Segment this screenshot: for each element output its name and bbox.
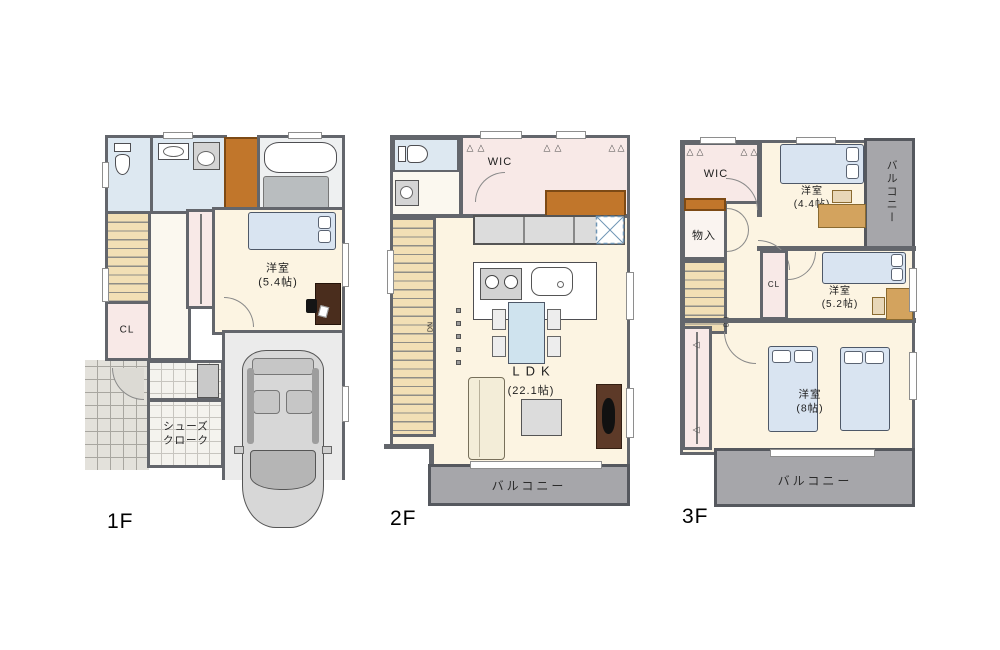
hanger-icon: △ bbox=[741, 147, 748, 158]
hanger-icon: △ bbox=[478, 143, 485, 154]
refrigerator-icon bbox=[595, 215, 625, 245]
desk-3f-44 bbox=[818, 204, 866, 228]
toilet-tank-icon bbox=[114, 143, 131, 152]
hanger-icon: △ bbox=[555, 143, 562, 154]
hanger-icon: △ bbox=[691, 427, 702, 434]
counter-divider bbox=[523, 217, 525, 243]
desk-chair-1f bbox=[306, 299, 317, 313]
closet-pole bbox=[200, 214, 202, 304]
window bbox=[626, 388, 634, 438]
window bbox=[163, 132, 193, 139]
closet-mid-label: CL bbox=[768, 280, 780, 290]
wic-label-2f: WIC bbox=[488, 155, 512, 169]
bed-pillow bbox=[794, 350, 813, 363]
wic-label-3f: WIC bbox=[704, 167, 728, 181]
stove-burner-icon bbox=[485, 275, 499, 289]
balcony-bottom-label: バルコニー bbox=[778, 474, 853, 490]
window bbox=[342, 386, 349, 422]
dining-chair bbox=[547, 309, 561, 330]
sink-drain-icon bbox=[557, 281, 564, 288]
car-windshield bbox=[250, 450, 316, 490]
window bbox=[626, 272, 634, 320]
bedroom52-label: 洋室 (5.2帖) bbox=[822, 285, 859, 311]
linen-cabinet bbox=[224, 137, 260, 211]
washing-machine-drum-icon bbox=[197, 151, 215, 166]
hanger-icon: △ bbox=[618, 143, 625, 154]
ldk-size-label: (22.1帖) bbox=[508, 384, 555, 398]
bed-pillow bbox=[772, 350, 791, 363]
desk-chair-3f bbox=[832, 190, 852, 203]
bed-pillow bbox=[318, 216, 331, 229]
floor-plan-sheet: シューズ クローク CL 洋室 (5.4帖) bbox=[0, 0, 1000, 650]
tv-icon bbox=[602, 398, 615, 434]
shoes-closet-label: シューズ クローク bbox=[163, 420, 209, 447]
hanger-icon: △ bbox=[697, 147, 704, 158]
notch-wall bbox=[384, 444, 432, 449]
hanger-icon: △ bbox=[691, 342, 702, 349]
bed-pillow bbox=[865, 351, 884, 364]
window bbox=[909, 268, 917, 312]
dining-chair bbox=[547, 336, 561, 357]
shelf-dot bbox=[456, 308, 461, 313]
bed-pillow bbox=[844, 351, 863, 364]
car-mirror bbox=[234, 446, 244, 454]
storage-label: 物入 bbox=[692, 229, 716, 243]
plan-notch bbox=[383, 447, 429, 475]
closet-label-1f: CL bbox=[120, 324, 135, 337]
window bbox=[909, 352, 917, 400]
wic-cabinet-2f bbox=[545, 190, 626, 217]
sink-icon bbox=[531, 267, 573, 296]
coffee-table bbox=[521, 399, 562, 436]
floor-label-2f: 2F bbox=[390, 507, 417, 531]
window bbox=[387, 250, 394, 294]
dining-chair bbox=[492, 336, 506, 357]
toilet-tank-icon bbox=[398, 146, 406, 162]
balcony-side-label: バルコニー bbox=[884, 160, 898, 225]
interior-wall bbox=[680, 318, 916, 323]
bed-pillow bbox=[891, 268, 903, 281]
window bbox=[770, 449, 875, 457]
window bbox=[288, 132, 322, 139]
balcony-label-2f: バルコニー bbox=[492, 479, 567, 495]
down-label-2f: DN bbox=[428, 322, 435, 332]
bedroom8-label: 洋室 (8帖) bbox=[796, 388, 823, 415]
window bbox=[556, 131, 586, 139]
bed-pillow bbox=[318, 230, 331, 243]
shelf-dot bbox=[456, 321, 461, 326]
car-side-pillar bbox=[312, 368, 319, 444]
hanger-icon: △ bbox=[544, 143, 551, 154]
storage-shelf-3f bbox=[684, 198, 726, 211]
bed-pillow bbox=[846, 147, 859, 162]
floor-label-1f: 1F bbox=[107, 510, 134, 534]
bed-pillow bbox=[846, 164, 859, 179]
car-mirror bbox=[322, 446, 332, 454]
washbasin-bowl-icon bbox=[163, 146, 184, 157]
bedroom-label-1f: 洋室 (5.4帖) bbox=[258, 262, 298, 291]
dining-table bbox=[508, 302, 545, 364]
counter-divider bbox=[573, 217, 575, 243]
bed-pillow bbox=[891, 254, 903, 267]
car-side-pillar bbox=[247, 368, 254, 444]
sofa-seat-line bbox=[479, 380, 480, 457]
stove-burner-icon bbox=[504, 275, 518, 289]
shelf-dot bbox=[456, 334, 461, 339]
car-rear-seat bbox=[252, 358, 314, 375]
window bbox=[342, 243, 349, 287]
window bbox=[480, 131, 522, 139]
interior-wall bbox=[150, 398, 221, 402]
window bbox=[102, 162, 109, 188]
stairs-1f bbox=[105, 211, 151, 305]
desk-chair-3f bbox=[872, 297, 885, 315]
hanger-icon: △ bbox=[687, 147, 694, 158]
floor-label-3f: 3F bbox=[682, 505, 709, 529]
hanger-icon: △ bbox=[467, 143, 474, 154]
car-front-seat bbox=[286, 390, 313, 414]
hanger-icon: △ bbox=[609, 143, 616, 154]
window bbox=[470, 461, 602, 469]
window bbox=[796, 137, 836, 144]
dining-chair bbox=[492, 309, 506, 330]
shoe-cabinet bbox=[197, 364, 219, 398]
ldk-label: LDK bbox=[512, 364, 555, 381]
washbasin-bowl-icon bbox=[400, 186, 413, 199]
window bbox=[102, 268, 109, 302]
desk-1f bbox=[315, 283, 341, 325]
window bbox=[700, 137, 736, 144]
toilet-bowl-icon bbox=[407, 145, 428, 163]
bathtub-icon bbox=[264, 142, 337, 173]
shelf-dot bbox=[456, 347, 461, 352]
sofa bbox=[468, 377, 505, 460]
shelf-dot bbox=[456, 360, 461, 365]
car-front-seat bbox=[253, 390, 280, 414]
